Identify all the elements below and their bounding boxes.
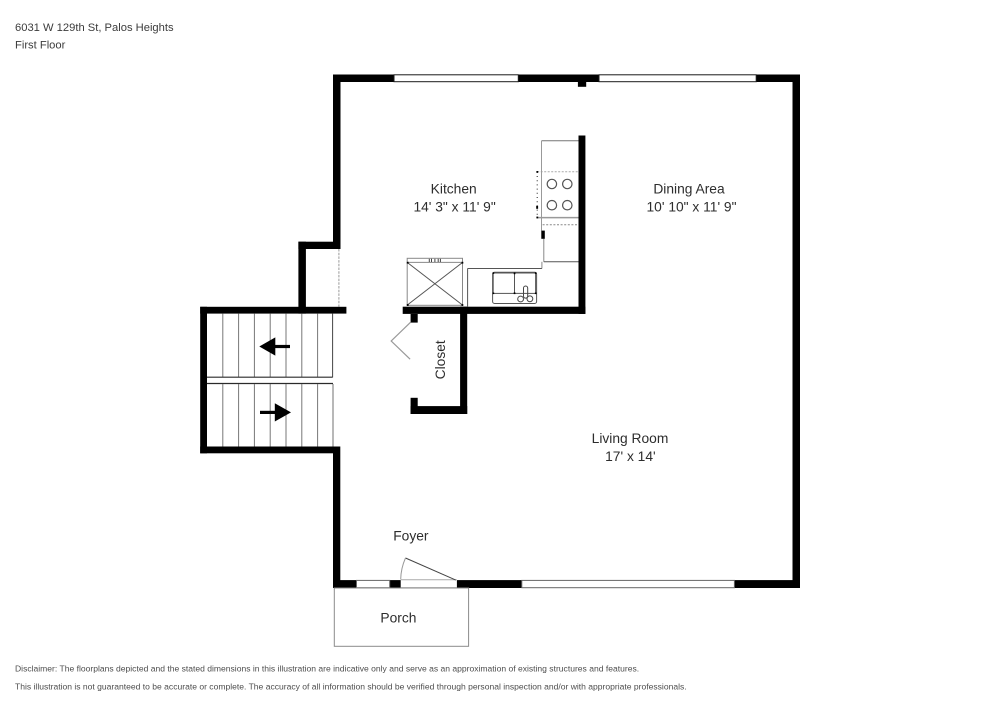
- svg-text:Foyer: Foyer: [393, 529, 429, 544]
- svg-text:14' 3" x 11' 9": 14' 3" x 11' 9": [413, 200, 495, 215]
- svg-text:Kitchen: Kitchen: [431, 182, 477, 197]
- svg-text:Porch: Porch: [380, 611, 416, 626]
- svg-text:6031 W 129th St, Palos Heights: 6031 W 129th St, Palos Heights: [15, 22, 174, 34]
- svg-text:Closet: Closet: [433, 340, 448, 379]
- svg-text:10' 10" x 11' 9": 10' 10" x 11' 9": [647, 200, 737, 215]
- svg-text:Living Room: Living Room: [592, 431, 669, 446]
- svg-text:17' x 14': 17' x 14': [605, 449, 656, 464]
- svg-text:This illustration is not guara: This illustration is not guaranteed to b…: [15, 682, 687, 692]
- svg-text:Disclaimer: The floorplans dep: Disclaimer: The floorplans depicted and …: [15, 664, 639, 674]
- svg-text:First Floor: First Floor: [15, 40, 66, 52]
- svg-text:Dining Area: Dining Area: [653, 182, 725, 197]
